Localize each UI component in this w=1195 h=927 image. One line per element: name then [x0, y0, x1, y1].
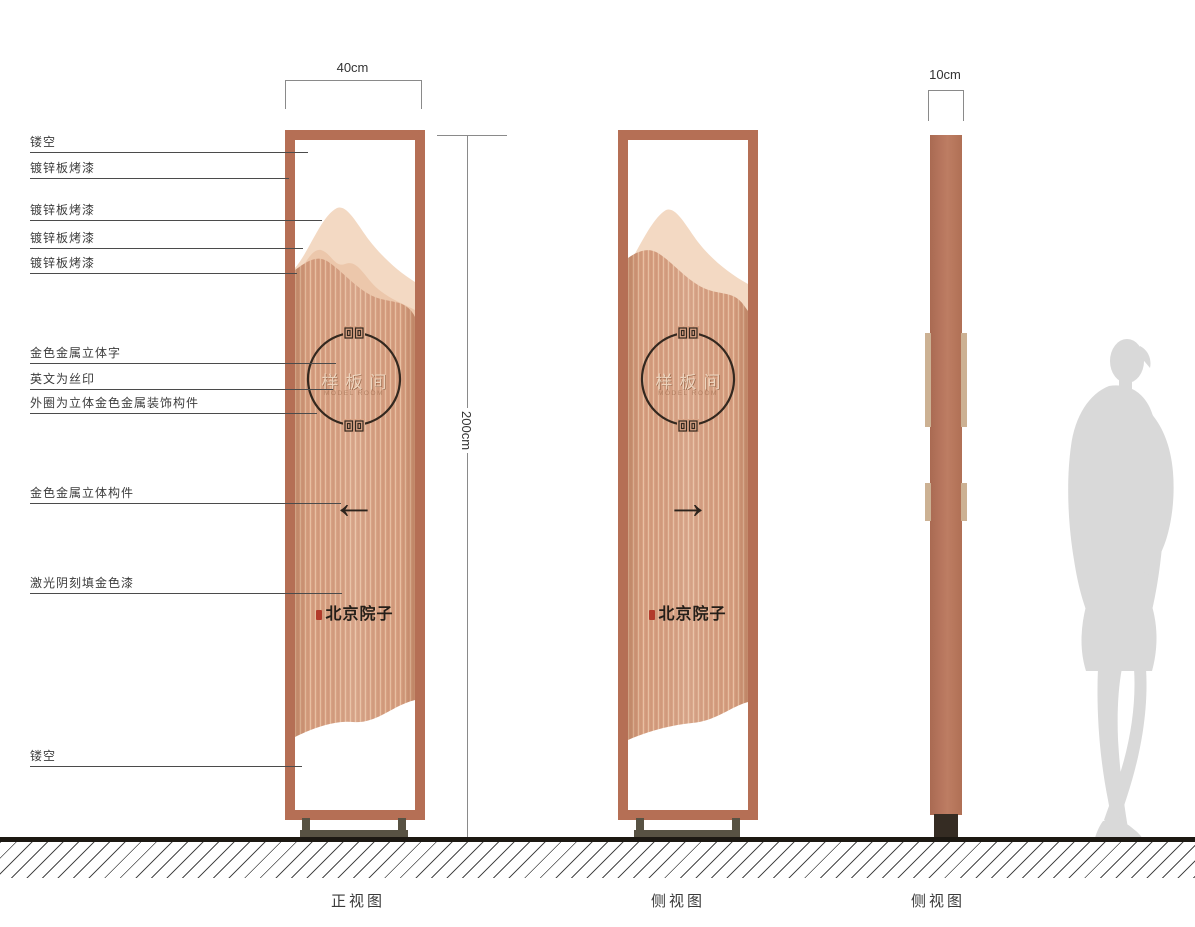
profile-protrusion-arrow-left	[925, 483, 931, 521]
brand-text: 北京院子	[658, 604, 726, 623]
callout-gold-ring-decoration: 外圈为立体金色金属装饰构件	[30, 396, 317, 414]
caption-front-view: 正视图	[308, 890, 408, 911]
callout-label: 镂空	[30, 135, 308, 150]
sign-profile-column	[930, 135, 962, 815]
sign-side-view	[618, 130, 758, 820]
callout-label: 镂空	[30, 749, 302, 764]
callout-label: 英文为丝印	[30, 372, 333, 387]
callout-label: 镀锌板烤漆	[30, 203, 322, 218]
dim-depth-label: 10cm	[908, 67, 982, 82]
seal-icon	[316, 610, 322, 620]
dim-height-line	[467, 135, 468, 837]
meander-ornament-bottom-icon	[343, 419, 365, 432]
dim-depth-bracket	[928, 90, 964, 121]
meander-ornament-top-icon	[677, 326, 699, 339]
brand-calligraphy-front: 北京院子	[300, 600, 410, 624]
callout-leader-line	[30, 248, 303, 249]
callout-gold-3d-component: 金色金属立体构件	[30, 486, 341, 504]
callout-hollow-top: 镂空	[30, 135, 308, 153]
plate-name-en-side: MODEL ROOM	[638, 390, 738, 397]
profile-protrusion-arrow-right	[961, 483, 967, 521]
plate-name-en-front: MODEL ROOM	[304, 390, 404, 397]
dim-width-bracket	[285, 80, 422, 109]
seal-icon	[649, 610, 655, 620]
callout-leader-line	[30, 363, 336, 364]
callout-leader-line	[30, 503, 341, 504]
callout-galvanized-layer2: 镀锌板烤漆	[30, 231, 303, 249]
caption-side-view-1: 侧视图	[628, 890, 728, 911]
callout-label: 镀锌板烤漆	[30, 231, 303, 246]
callout-leader-line	[30, 766, 302, 767]
meander-ornament-bottom-icon	[677, 419, 699, 432]
arrow-right-icon: →	[656, 476, 720, 528]
brand-calligraphy-side: 北京院子	[633, 600, 743, 624]
brand-text: 北京院子	[325, 604, 393, 623]
callout-leader-line	[30, 178, 289, 179]
profile-protrusion-ring-left	[925, 333, 931, 427]
callout-label: 镀锌板烤漆	[30, 161, 289, 176]
callout-leader-line	[30, 413, 317, 414]
callout-gold-3d-letters: 金色金属立体字	[30, 346, 336, 364]
callout-leader-line	[30, 220, 322, 221]
callout-hollow-bottom: 镂空	[30, 749, 302, 767]
page-root: { "callouts": [ {"label": "镂空"}, {"label…	[0, 0, 1195, 927]
callout-leader-line	[30, 389, 333, 390]
meander-ornament-top-icon	[343, 326, 365, 339]
sign-side-graphics	[628, 140, 748, 810]
callout-laser-engraved-gold: 激光阴刻填金色漆	[30, 576, 342, 594]
profile-protrusion-ring-right	[961, 333, 967, 427]
profile-base-block	[934, 814, 958, 838]
caption-side-view-2: 侧视图	[888, 890, 988, 911]
sign-front-graphics	[295, 140, 415, 810]
callout-galvanized-layer1: 镀锌板烤漆	[30, 203, 322, 221]
sign-front-view	[285, 130, 425, 820]
callout-galvanized-frame: 镀锌板烤漆	[30, 161, 289, 179]
callout-english-silkscreen: 英文为丝印	[30, 372, 333, 390]
callout-leader-line	[30, 152, 308, 153]
person-silhouette	[1045, 334, 1195, 839]
callout-leader-line	[30, 273, 297, 274]
callout-label: 激光阴刻填金色漆	[30, 576, 342, 591]
callout-label: 外圈为立体金色金属装饰构件	[30, 396, 317, 411]
callout-label: 镀锌板烤漆	[30, 256, 297, 271]
callout-label: 金色金属立体字	[30, 346, 336, 361]
dim-height-tick	[437, 135, 507, 136]
dim-height-label: 200cm	[458, 408, 475, 453]
dim-width-label: 40cm	[285, 60, 420, 75]
callout-label: 金色金属立体构件	[30, 486, 341, 501]
callout-leader-line	[30, 593, 342, 594]
callout-galvanized-layer3: 镀锌板烤漆	[30, 256, 297, 274]
ground-hatch	[0, 842, 1195, 878]
